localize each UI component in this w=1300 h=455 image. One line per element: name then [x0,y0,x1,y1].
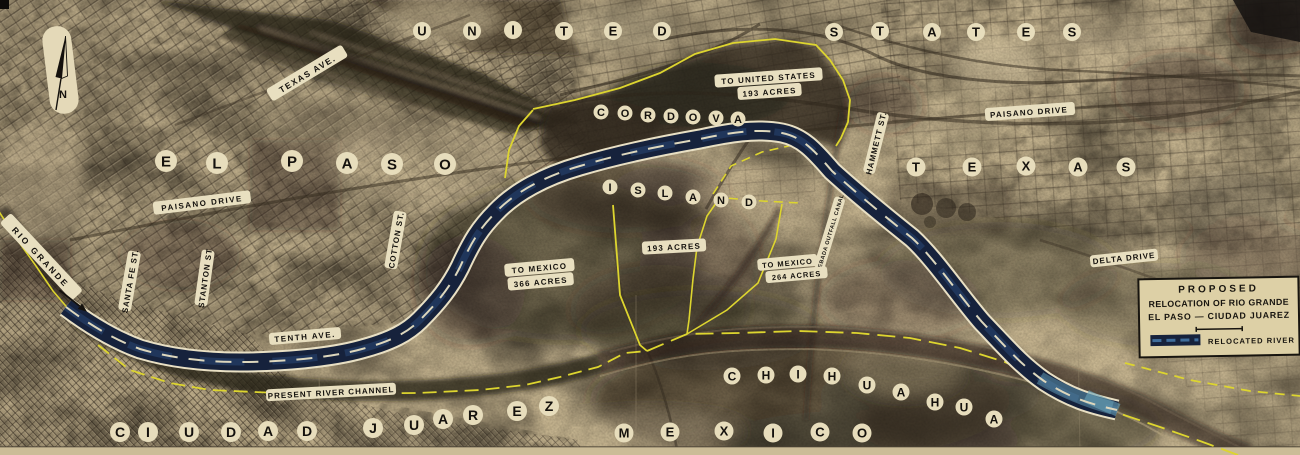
svg-text:S: S [634,185,641,197]
svg-text:S: S [387,156,397,173]
svg-text:E: E [512,403,521,419]
svg-text:L: L [662,188,669,200]
svg-text:P: P [287,153,297,170]
svg-text:O: O [621,108,630,120]
svg-text:H: H [931,395,940,409]
svg-text:N: N [59,89,67,101]
svg-text:O: O [439,156,451,173]
svg-text:A: A [438,411,448,427]
svg-text:O: O [689,112,698,124]
svg-text:S: S [830,25,839,40]
svg-text:A: A [263,423,273,439]
svg-text:A: A [990,412,999,426]
svg-text:A: A [897,385,906,399]
svg-text:T: T [912,160,920,175]
svg-text:E: E [968,160,977,175]
svg-text:D: D [657,24,666,39]
svg-text:X: X [720,424,729,439]
svg-text:I: I [146,424,150,440]
svg-text:H: H [828,369,837,383]
svg-text:I: I [771,426,775,441]
svg-text:N: N [467,24,476,39]
svg-text:D: D [745,197,753,209]
svg-text:U: U [417,24,426,39]
svg-text:U: U [184,424,194,440]
svg-text:I: I [608,182,611,194]
svg-text:Z: Z [545,398,554,414]
svg-text:C: C [597,107,605,119]
svg-text:X: X [1022,159,1031,174]
svg-text:C: C [115,424,125,440]
svg-text:E: E [666,425,675,440]
svg-text:A: A [927,25,937,40]
svg-text:U: U [960,400,969,414]
svg-text:E: E [161,153,171,170]
svg-text:D: D [302,423,312,439]
svg-text:PROPOSED: PROPOSED [1178,283,1259,295]
svg-text:I: I [796,367,799,381]
svg-text:S: S [1068,25,1077,40]
svg-text:N: N [717,195,725,207]
svg-text:J: J [369,420,377,436]
svg-text:L: L [212,155,221,172]
svg-text:A: A [342,155,353,172]
svg-text:R: R [644,110,652,122]
svg-text:E: E [1022,25,1031,40]
svg-text:A: A [689,192,697,204]
svg-text:D: D [226,424,236,440]
svg-text:I: I [511,23,515,38]
svg-text:V: V [712,113,720,125]
svg-text:A: A [734,114,742,126]
svg-text:O: O [857,426,867,441]
svg-text:T: T [560,24,568,39]
svg-text:E: E [609,24,618,39]
svg-text:A: A [1073,160,1083,175]
svg-text:R: R [468,407,478,423]
svg-text:C: C [728,369,737,383]
svg-text:U: U [409,417,419,433]
svg-text:U: U [863,378,872,392]
svg-text:S: S [1122,160,1131,175]
svg-text:H: H [762,368,771,382]
svg-text:C: C [815,425,825,440]
svg-text:RELOCATED RIVER: RELOCATED RIVER [1208,336,1295,347]
svg-text:T: T [972,25,980,40]
svg-text:T: T [876,24,884,39]
svg-text:D: D [667,111,675,123]
svg-text:M: M [619,426,630,441]
